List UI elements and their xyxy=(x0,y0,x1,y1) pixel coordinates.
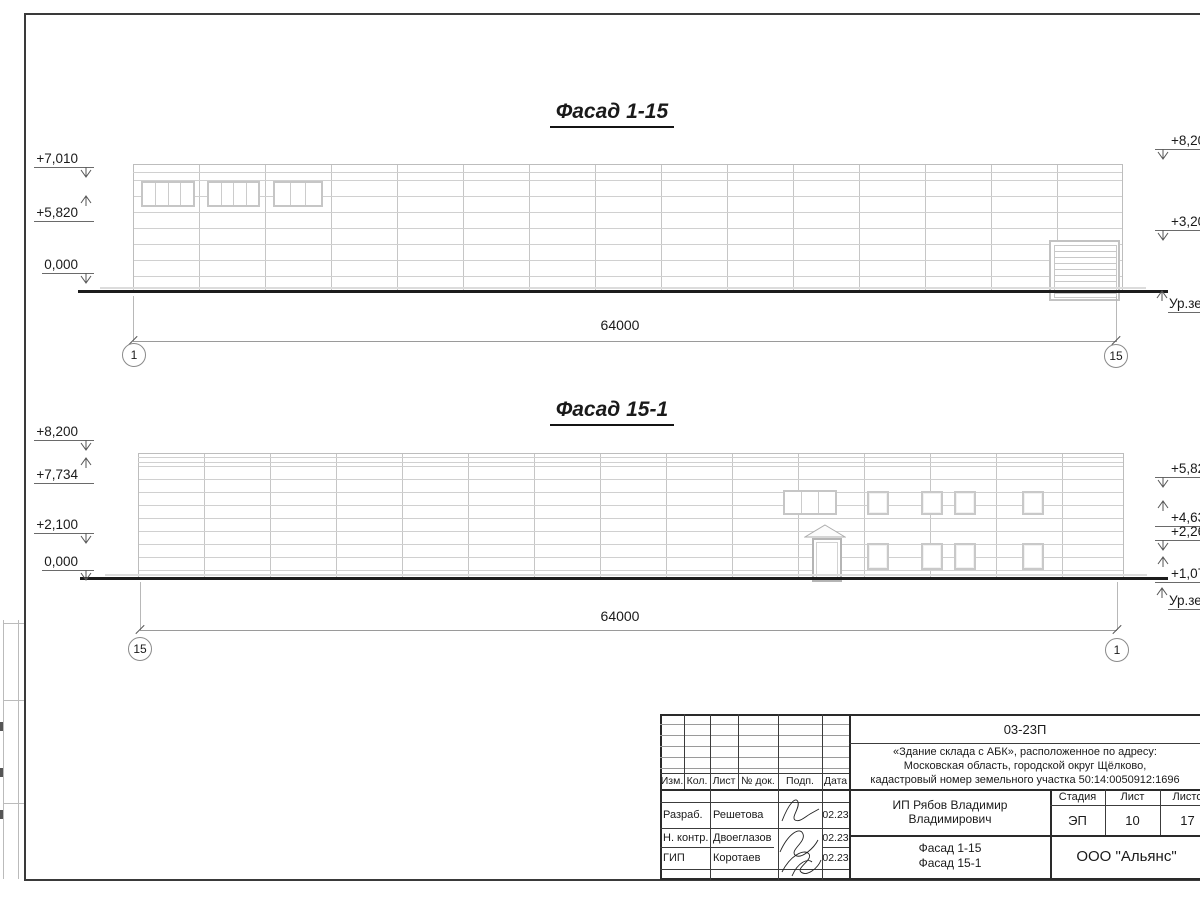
client-name: ИП Рябов Владимир Владимирович xyxy=(852,790,1048,834)
elevation-mark: 0,000 xyxy=(34,554,94,571)
elevation-label: +2,26 xyxy=(1155,524,1200,541)
company-name: ООО "Альянс" xyxy=(1052,835,1200,878)
extension-line xyxy=(1117,582,1118,630)
facade2-ground-soft xyxy=(105,574,1147,576)
signature xyxy=(774,822,824,878)
facade2-ground-line xyxy=(80,577,1168,580)
ground-level-label: Ур.зе xyxy=(1168,593,1200,610)
elevation-label: 0,000 xyxy=(42,257,94,274)
elevation-label: +2,100 xyxy=(34,517,94,534)
extension-line xyxy=(133,296,134,342)
facade2-window xyxy=(921,543,943,570)
axis-number: 15 xyxy=(1109,349,1122,363)
axis-bubble: 1 xyxy=(1105,638,1129,662)
side-stamp-text-fragment xyxy=(0,722,3,731)
elevation-label: +8,200 xyxy=(34,424,94,441)
facade2-window xyxy=(1022,543,1044,570)
facade1-ground-line xyxy=(78,290,1168,293)
tb-col-izm: Изм. xyxy=(660,773,684,789)
sheet-header: Лист xyxy=(1105,790,1160,804)
elevation-mark: +1,07 xyxy=(1155,566,1200,583)
level-arrow-up-icon xyxy=(1156,498,1170,511)
side-stamp-text-fragment xyxy=(0,810,3,819)
axis-bubble: 1 xyxy=(122,343,146,367)
level-arrow-down-icon xyxy=(79,533,93,546)
door-panel xyxy=(816,542,838,578)
tb-line xyxy=(660,735,849,736)
level-arrow-down-icon xyxy=(79,440,93,453)
tb-col-ndok: № док. xyxy=(738,773,778,789)
facade2-title: Фасад 15-1 xyxy=(412,398,812,426)
elevation-mark: +7,734 xyxy=(34,467,94,484)
side-stamp-text-fragment xyxy=(0,768,3,777)
level-arrow-up-icon xyxy=(79,193,93,206)
elevation-label: +1,07 xyxy=(1155,566,1200,583)
sheets-total: 17 xyxy=(1160,805,1200,835)
dimension-line xyxy=(140,630,1117,631)
level-arrow-down-icon xyxy=(1156,477,1170,490)
stage-value: ЭП xyxy=(1050,805,1105,835)
facade2-wall xyxy=(138,453,1124,580)
staff-name: Коротаев xyxy=(713,847,783,869)
elevation-mark: +2,100 xyxy=(34,517,94,534)
facade1-title: Фасад 1-15 xyxy=(412,100,812,128)
elevation-mark: +7,010 xyxy=(34,151,94,168)
axis-number: 15 xyxy=(133,642,146,656)
project-address-line: Московская область, городской округ Щёлк… xyxy=(850,759,1200,773)
dimension-line xyxy=(133,341,1117,342)
elevation-mark: +3,20 xyxy=(1155,214,1200,231)
facade2-title-text: Фасад 15-1 xyxy=(550,398,674,426)
facade1-window-strip xyxy=(141,181,195,207)
door-pediment xyxy=(804,524,846,538)
facade2-window xyxy=(954,543,976,570)
dimension-text: 64000 xyxy=(520,608,720,624)
level-arrow-down-icon xyxy=(79,570,93,583)
staff-name: Двоеглазов xyxy=(713,828,783,847)
side-stamp-line xyxy=(3,803,24,804)
facade1-ground-soft xyxy=(100,287,1146,289)
level-arrow-down-icon xyxy=(79,167,93,180)
side-stamp-line xyxy=(3,623,24,624)
level-arrow-down-icon xyxy=(79,273,93,286)
tb-line xyxy=(660,768,849,769)
stage-header: Стадия xyxy=(1050,790,1105,804)
level-arrow-up-icon xyxy=(1155,585,1169,598)
axis-number: 1 xyxy=(131,348,138,362)
level-arrow-down-icon xyxy=(1156,230,1170,243)
facade2-window xyxy=(867,543,889,570)
side-stamp-line xyxy=(18,620,19,879)
facade2-window xyxy=(867,491,889,515)
title-block: 03-23П «Здание склада с АБК», расположен… xyxy=(660,714,1200,880)
extension-line xyxy=(140,582,141,630)
tb-line xyxy=(660,757,849,758)
tb-col-list: Лист xyxy=(710,773,738,789)
axis-bubble: 15 xyxy=(1104,344,1128,368)
side-stamp-line xyxy=(3,620,4,879)
facade1-window-strip xyxy=(207,181,260,207)
sheet-number: 10 xyxy=(1105,805,1160,835)
elevation-label: +8,20 xyxy=(1155,133,1200,150)
axis-bubble: 15 xyxy=(128,637,152,661)
elevation-mark: +8,20 xyxy=(1155,133,1200,150)
facade2-parapet-line xyxy=(138,457,1123,458)
facade1-window-strip xyxy=(273,181,323,207)
level-arrow-down-icon xyxy=(1156,540,1170,553)
side-stamp-line xyxy=(3,700,24,701)
level-arrow-up-icon xyxy=(1156,554,1170,567)
extension-line xyxy=(1116,296,1117,342)
ground-level-mark: Ур.зе xyxy=(1155,288,1200,313)
facade1-title-text: Фасад 1-15 xyxy=(550,100,674,128)
ground-level-label: Ур.зе xyxy=(1168,296,1200,313)
tb-line xyxy=(660,714,662,880)
elevation-label: 0,000 xyxy=(42,554,94,571)
level-arrow-up-icon xyxy=(79,455,93,468)
tb-line xyxy=(660,878,1200,880)
axis-number: 1 xyxy=(1114,643,1121,657)
tb-line xyxy=(660,746,849,747)
elevation-label: +3,20 xyxy=(1155,214,1200,231)
facade1-parapet-line xyxy=(133,172,1122,173)
tb-col-data: Дата xyxy=(822,773,849,789)
elevation-mark: +5,820 xyxy=(34,205,94,222)
drawing-title-line: Фасад 15-1 xyxy=(850,855,1050,870)
staff-name: Решетова xyxy=(713,802,777,828)
elevation-label: +5,820 xyxy=(34,205,94,222)
dimension-text: 64000 xyxy=(520,317,720,333)
tb-line xyxy=(660,724,849,725)
elevation-label: +7,734 xyxy=(34,467,94,484)
staff-date: 02.23 xyxy=(822,802,849,828)
staff-date: 02.23 xyxy=(822,828,849,847)
level-arrow-up-icon xyxy=(1155,288,1169,301)
facade2-window xyxy=(921,491,943,515)
sheets-header: Листо xyxy=(1160,790,1200,804)
level-arrow-down-icon xyxy=(1156,149,1170,162)
tb-line xyxy=(849,743,1200,744)
elevation-mark: +5,82 xyxy=(1155,461,1200,478)
facade2-window xyxy=(1022,491,1044,515)
drawing-title-line: Фасад 1-15 xyxy=(850,840,1050,855)
tb-col-kol: Кол. xyxy=(684,773,710,789)
frame-left xyxy=(24,13,26,881)
facade2-window xyxy=(954,491,976,515)
elevation-mark: 0,000 xyxy=(34,257,94,274)
facade2-window-strip xyxy=(783,490,837,515)
tb-col-podp: Подп. xyxy=(778,773,822,789)
document-code: 03-23П xyxy=(850,716,1200,742)
project-address-line: кадастровый номер земельного участка 50:… xyxy=(850,773,1200,787)
elevation-mark: +2,26 xyxy=(1155,524,1200,541)
facade2-parapet-line xyxy=(138,462,1123,463)
elevation-label: +7,010 xyxy=(34,151,94,168)
staff-date: 02.23 xyxy=(822,847,849,869)
elevation-label: +5,82 xyxy=(1155,461,1200,478)
elevation-mark: +8,200 xyxy=(34,424,94,441)
frame-top xyxy=(24,13,1200,15)
ground-level-mark: Ур.зе xyxy=(1155,585,1200,610)
project-address-line: «Здание склада с АБК», расположенное по … xyxy=(850,745,1200,759)
drawing-sheet: { "facade1": { "title": "Фасад 1-15", "d… xyxy=(0,0,1200,900)
